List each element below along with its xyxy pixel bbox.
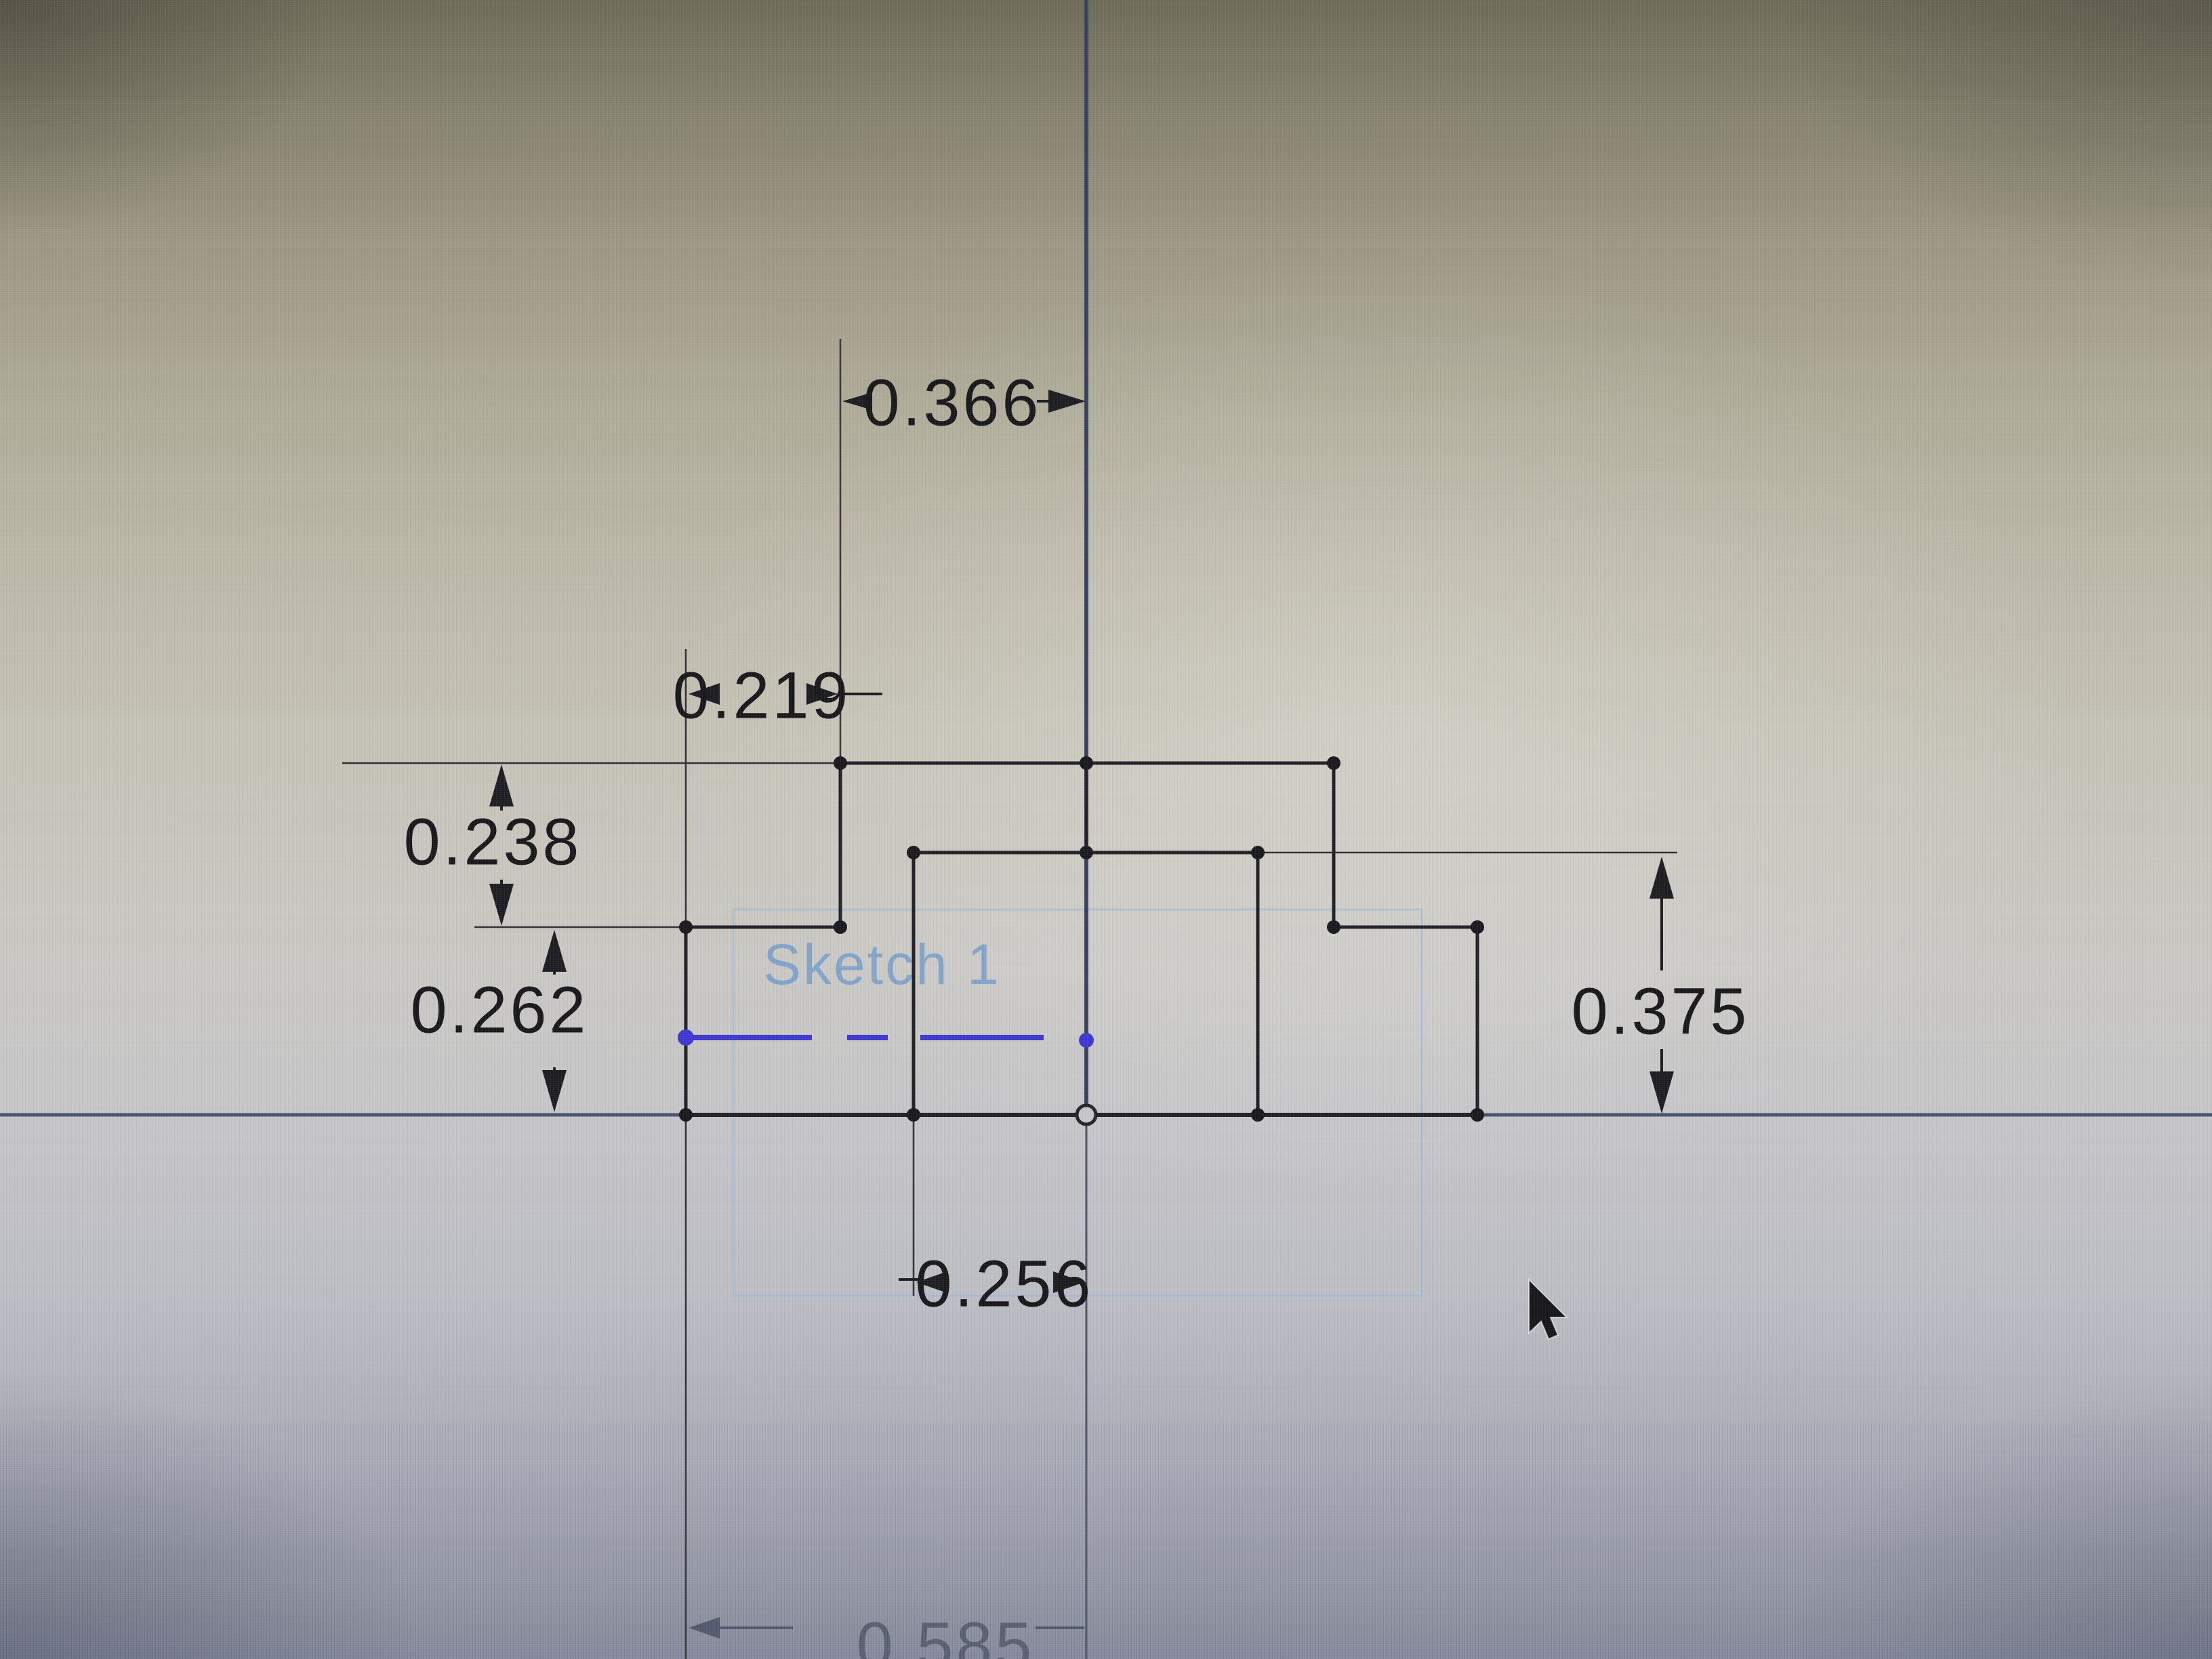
cursor-arrow-icon [1529,1279,1567,1339]
sketch-name-label: Sketch 1 [763,933,1001,996]
vertex-point[interactable] [1327,756,1340,770]
vertex-point[interactable] [1471,920,1484,934]
dimension-label-238[interactable]: 0.238 [404,805,582,879]
axes[interactable] [0,0,2212,1659]
vertex-point[interactable] [907,1108,920,1122]
vertex-point[interactable] [1251,846,1265,859]
vertex-point[interactable] [1080,846,1093,859]
dimension-256[interactable]: 0.256 [899,1247,1093,1321]
construction-endpoint[interactable] [1079,1033,1094,1048]
vertex-point[interactable] [1251,1108,1265,1122]
dim-arrow-right-icon [1048,390,1086,413]
origin-point-icon[interactable] [1077,1105,1096,1124]
dim-arrow-left-icon [689,1617,720,1639]
dimension-label-585[interactable]: 0.585 [857,1609,1035,1659]
dimension-366[interactable]: 0.366 [842,366,1086,440]
sketch-canvas[interactable]: Sketch 1 [0,0,2212,1659]
dimension-label-262[interactable]: 0.262 [411,973,589,1047]
dimension-585[interactable]: 0.585 [689,1609,1084,1659]
vertex-point[interactable] [1471,1108,1484,1122]
cad-viewport[interactable]: Sketch 1 [0,0,2212,1659]
dimension-238[interactable]: 0.238 [404,764,582,926]
dimension-label-375[interactable]: 0.375 [1572,975,1750,1048]
vertex-point[interactable] [679,920,693,934]
vertex-point[interactable] [679,1108,693,1122]
dimension-375[interactable]: 0.375 [1572,857,1750,1113]
construction-line[interactable] [678,1029,1094,1048]
construction-endpoint[interactable] [678,1029,694,1046]
vertex-point[interactable] [1327,920,1340,934]
sketch-region-box: Sketch 1 [733,909,1422,1296]
dimension-label-256[interactable]: 0.256 [916,1247,1094,1321]
vertex-point[interactable] [834,920,847,934]
vertex-point[interactable] [907,846,920,859]
dimension-label-219[interactable]: 0.219 [673,659,851,733]
vertex-point[interactable] [834,756,847,770]
dimension-219[interactable]: 0.219 [673,659,882,733]
dimension-label-366[interactable]: 0.366 [863,366,1042,440]
vertex-point[interactable] [1080,756,1093,770]
dimension-262[interactable]: 0.262 [411,930,589,1112]
